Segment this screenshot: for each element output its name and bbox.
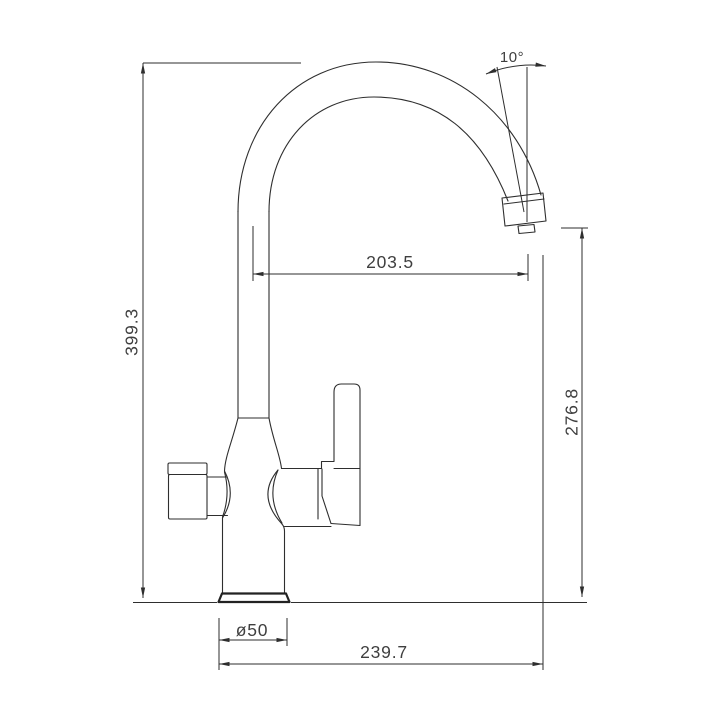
filter-knob: [168, 463, 228, 519]
technical-drawing: 399.3 203.5 10° 276.8 ø50: [0, 0, 713, 716]
column-right-edge: [282, 524, 285, 594]
base-diameter-label: ø50: [236, 620, 269, 640]
spout-outer-curve: [238, 62, 541, 212]
outlet-height-label: 276.8: [562, 388, 582, 436]
faucet-body: [223, 418, 361, 594]
spout-reach-label: 203.5: [366, 252, 414, 272]
overall-height-label: 399.3: [122, 308, 142, 356]
body-left-flare: [225, 418, 239, 471]
aerator: [518, 225, 535, 234]
spout-inner-curve: [269, 97, 508, 212]
spout-nozzle: [502, 193, 546, 234]
overall-depth-label: 239.7: [360, 642, 408, 662]
dimension-overall-depth: 239.7: [219, 255, 543, 670]
dimension-overall-height: 399.3: [122, 63, 302, 598]
lever-handle: [322, 384, 361, 526]
dimension-base-diameter: ø50: [219, 618, 287, 670]
faucet-dimension-diagram: 399.3 203.5 10° 276.8 ø50: [0, 0, 713, 716]
body-right-flare: [269, 418, 282, 469]
dimension-outlet-height: 276.8: [561, 228, 588, 597]
spout-angle-label: 10°: [500, 49, 524, 66]
base-flange: [219, 594, 290, 603]
faucet-outline: [133, 62, 587, 603]
dimension-spout-reach: 203.5: [253, 226, 528, 281]
